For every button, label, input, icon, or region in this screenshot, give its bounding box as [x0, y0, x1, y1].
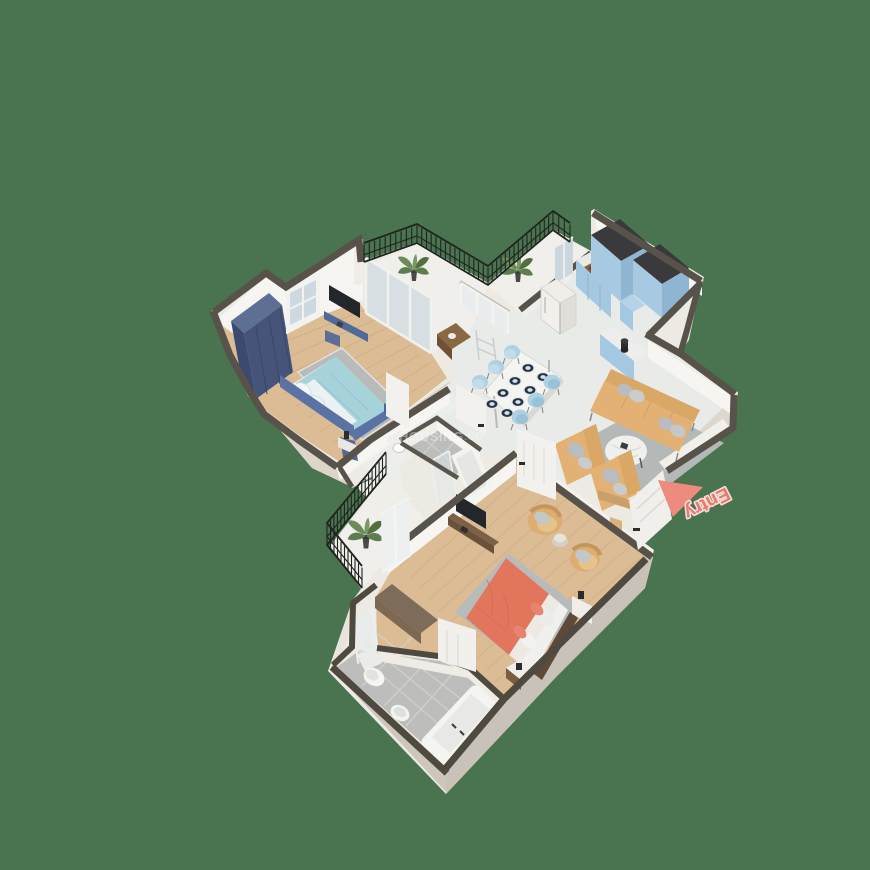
- svg-text:⌂: ⌂: [383, 428, 391, 443]
- svg-text:HOUSING: HOUSING: [399, 429, 464, 444]
- svg-text:.CO: .CO: [464, 431, 484, 443]
